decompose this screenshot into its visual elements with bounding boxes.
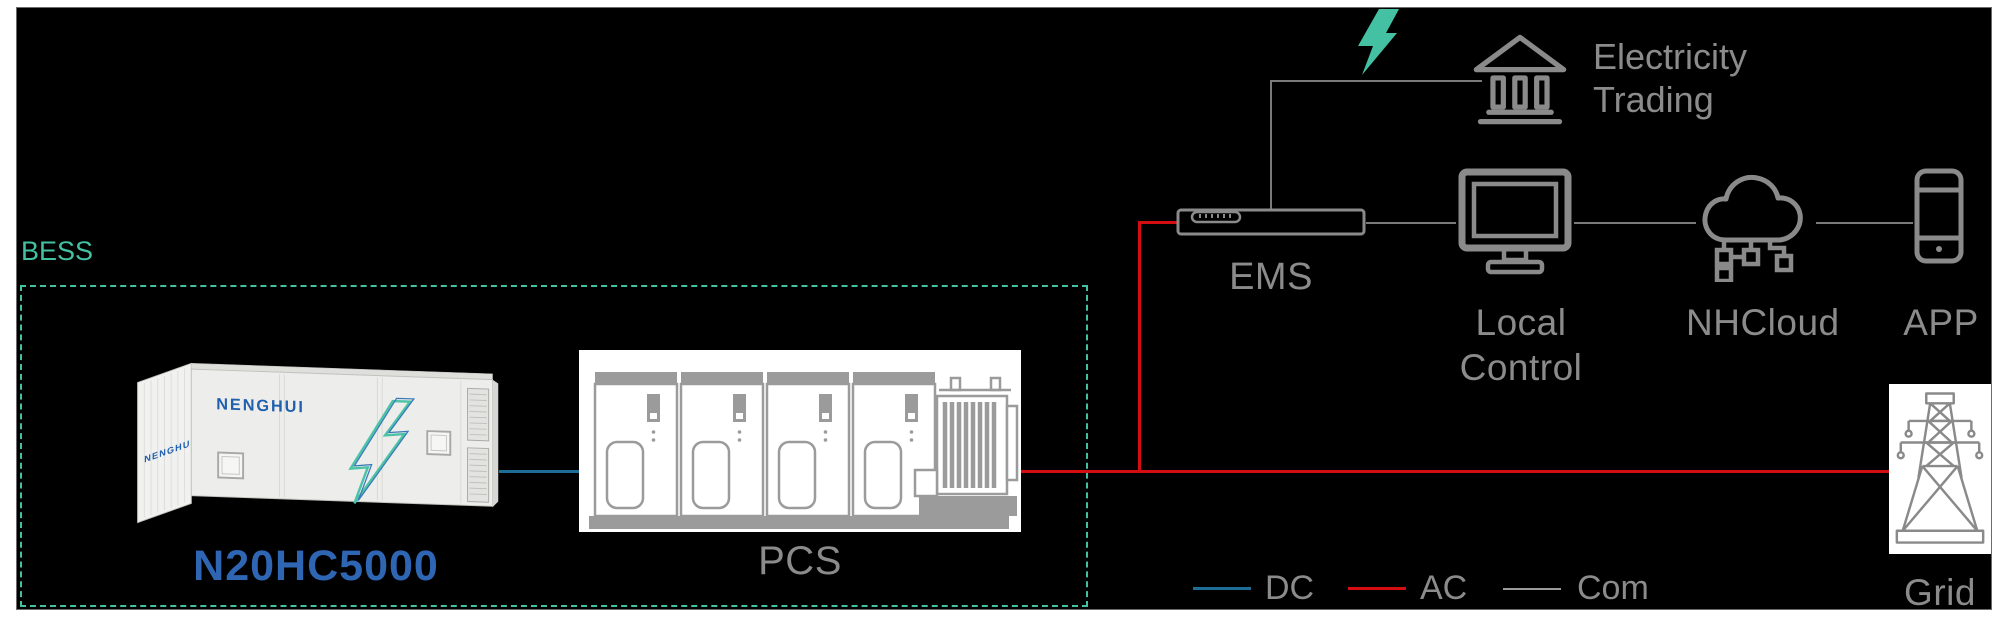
- electricity-trading-icon: [1468, 28, 1572, 132]
- ac-line-to-ems: [1138, 221, 1178, 224]
- ems-label: EMS: [1176, 255, 1366, 300]
- bess-model-label: N20HC5000: [127, 542, 505, 591]
- dc-line: [499, 470, 579, 473]
- legend-dc-line: [1193, 587, 1251, 590]
- diagram-stage: BESS NENGHUI NENGHUI: [0, 0, 2000, 638]
- app-icon: [1913, 168, 1965, 264]
- legend-com-line: [1503, 588, 1561, 590]
- com-line-ems-to-local: [1366, 222, 1456, 224]
- ac-line-riser: [1138, 221, 1141, 473]
- legend-dc-label: DC: [1265, 569, 1314, 608]
- pcs-label: PCS: [579, 539, 1021, 584]
- legend-com-label: Com: [1577, 569, 1649, 608]
- com-line-cloud-to-app: [1816, 222, 1913, 224]
- nhcloud-label: NHCloud: [1686, 300, 1826, 345]
- grid-label: Grid: [1889, 570, 1991, 615]
- lightning-bolt-icon: [1349, 9, 1401, 75]
- legend-ac-line: [1348, 587, 1406, 590]
- container-front-brand: NENGHUI: [216, 395, 305, 416]
- local-control-label: Local Control: [1451, 300, 1591, 390]
- electricity-trading-label: Electricity Trading: [1593, 35, 1747, 121]
- grid-tower-icon: [1889, 384, 1991, 554]
- ems-device-icon: [1176, 208, 1366, 236]
- pcs-illustration-panel: [579, 350, 1021, 532]
- com-line-ems-up: [1270, 80, 1272, 210]
- com-line-to-trading: [1270, 80, 1482, 82]
- pcs-icon: [579, 350, 1021, 532]
- bess-group-label: BESS: [21, 236, 93, 267]
- com-line-local-to-cloud: [1574, 222, 1696, 224]
- diagram-canvas: BESS NENGHUI NENGHUI: [16, 7, 1992, 610]
- ac-line-pcs-to-grid: [1021, 470, 1889, 473]
- legend-ac-label: AC: [1420, 569, 1467, 608]
- app-label: APP: [1891, 300, 1991, 345]
- nhcloud-icon: [1696, 158, 1816, 282]
- battery-container-icon: NENGHUI NENGHUI: [127, 348, 505, 536]
- grid-illustration-panel: [1889, 384, 1991, 554]
- local-control-icon: [1456, 166, 1574, 278]
